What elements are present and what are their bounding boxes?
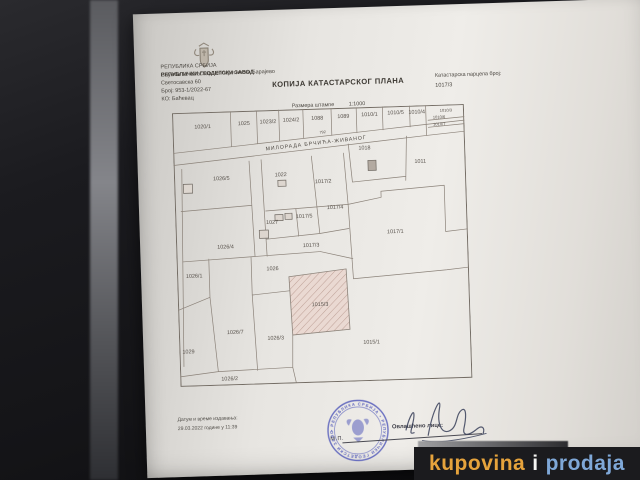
parcel-label: 1015/3 (312, 302, 329, 309)
map-canvas: 792 МИЛОРАДА БРЧИЋА-ЖИВАНОГ 1020/1102510… (172, 104, 472, 387)
parcel-label: 1026/5 (213, 176, 230, 183)
parcel-label: 1020/1 (194, 124, 211, 131)
parcel-label: 1026/4 (217, 244, 234, 251)
street-number-label: 792 (319, 130, 326, 135)
agency-header: РЕПУБЛИКА СРБИЈА РЕПУБЛИЧКИ ГЕОДЕТСКИ ЗА… (160, 60, 275, 104)
document-title: КОПИЈА КАТАСТАРСКОГ ПЛАНА (272, 76, 404, 89)
parcel-label: 1011 (414, 159, 426, 165)
parcel-label: 1088 (311, 116, 323, 122)
cadastral-document-paper: РЕПУБЛИКА СРБИЈА РЕПУБЛИЧКИ ГЕОДЕТСКИ ЗА… (133, 0, 640, 478)
watermark-bar: kupovina i prodaja (414, 447, 640, 480)
parcel-label: 1023/2 (260, 119, 277, 126)
parcel-label: 1010/6 (433, 114, 446, 119)
parcel-label: 1010/1 (361, 112, 378, 119)
photo-background: РЕПУБЛИКА СРБИЈА РЕПУБЛИЧКИ ГЕОДЕТСКИ ЗА… (0, 0, 640, 480)
parcel-label: 1018 (358, 145, 370, 151)
parcel-label: 1027 (266, 220, 278, 226)
parcel-label: 1010/4 (408, 109, 425, 116)
parcel-labels: 1020/110251023/21024/2108810891010/11010… (175, 107, 461, 383)
street-name-label: МИЛОРАДА БРЧИЋА-ЖИВАНОГ (265, 135, 367, 153)
parcel-ref-label: Катастарска парцела број: (435, 71, 502, 79)
parcel-label: 1010/7 (433, 121, 446, 126)
desk-surface-strip (90, 0, 118, 480)
stamp-emblem (347, 419, 370, 443)
parcel-label: 1017/4 (327, 205, 344, 212)
parcel-label: 1089 (337, 114, 349, 120)
building-footprint (183, 184, 192, 193)
issue-date-value: 29.03.2022 године у 11:39 (178, 424, 238, 432)
parcel-label: 1010/3 (440, 107, 453, 112)
parcel-label: 1017/1 (387, 229, 404, 236)
parcel-label: 1029 (182, 349, 194, 355)
parcel-label: 1017/2 (315, 179, 332, 186)
cadastral-map: 792 МИЛОРАДА БРЧИЋА-ЖИВАНОГ 1020/1102510… (172, 104, 472, 387)
watermark-word-prodaja: prodaja (546, 452, 625, 476)
parcel-boundaries (173, 134, 472, 386)
building-footprint (285, 213, 292, 219)
parcel-ref-value: 1017/3 (435, 82, 452, 89)
watermark-word-kupovina: kupovina (429, 452, 525, 476)
parcel-label: 1022 (275, 172, 287, 178)
watermark-word-i: i (532, 452, 538, 476)
issue-date-label: Датум и време издавања: (178, 415, 238, 423)
parcel-label: 1017/5 (296, 214, 313, 221)
parcel-label: 1025 (238, 121, 250, 127)
building-footprint (259, 230, 268, 238)
parcel-label: 1026/1 (186, 273, 203, 280)
building-footprint (368, 160, 376, 170)
parcel-label: 1026/3 (267, 335, 284, 342)
official-stamp: • РЕПУБЛИКА СРБИЈА • РЕПУБЛИЧКИ ГЕОДЕТСК… (322, 394, 394, 466)
parcel-label: 1015/1 (363, 339, 380, 346)
building-footprint (278, 180, 286, 186)
parcel-label: 1010/5 (387, 110, 404, 117)
parcel-label: 1026/7 (227, 330, 244, 337)
parcel-label: 1026/2 (221, 376, 238, 383)
parcel-label: 1024/2 (283, 117, 300, 124)
parcel-label: 1026 (266, 266, 278, 272)
parcel-label: 1017/3 (303, 243, 320, 250)
